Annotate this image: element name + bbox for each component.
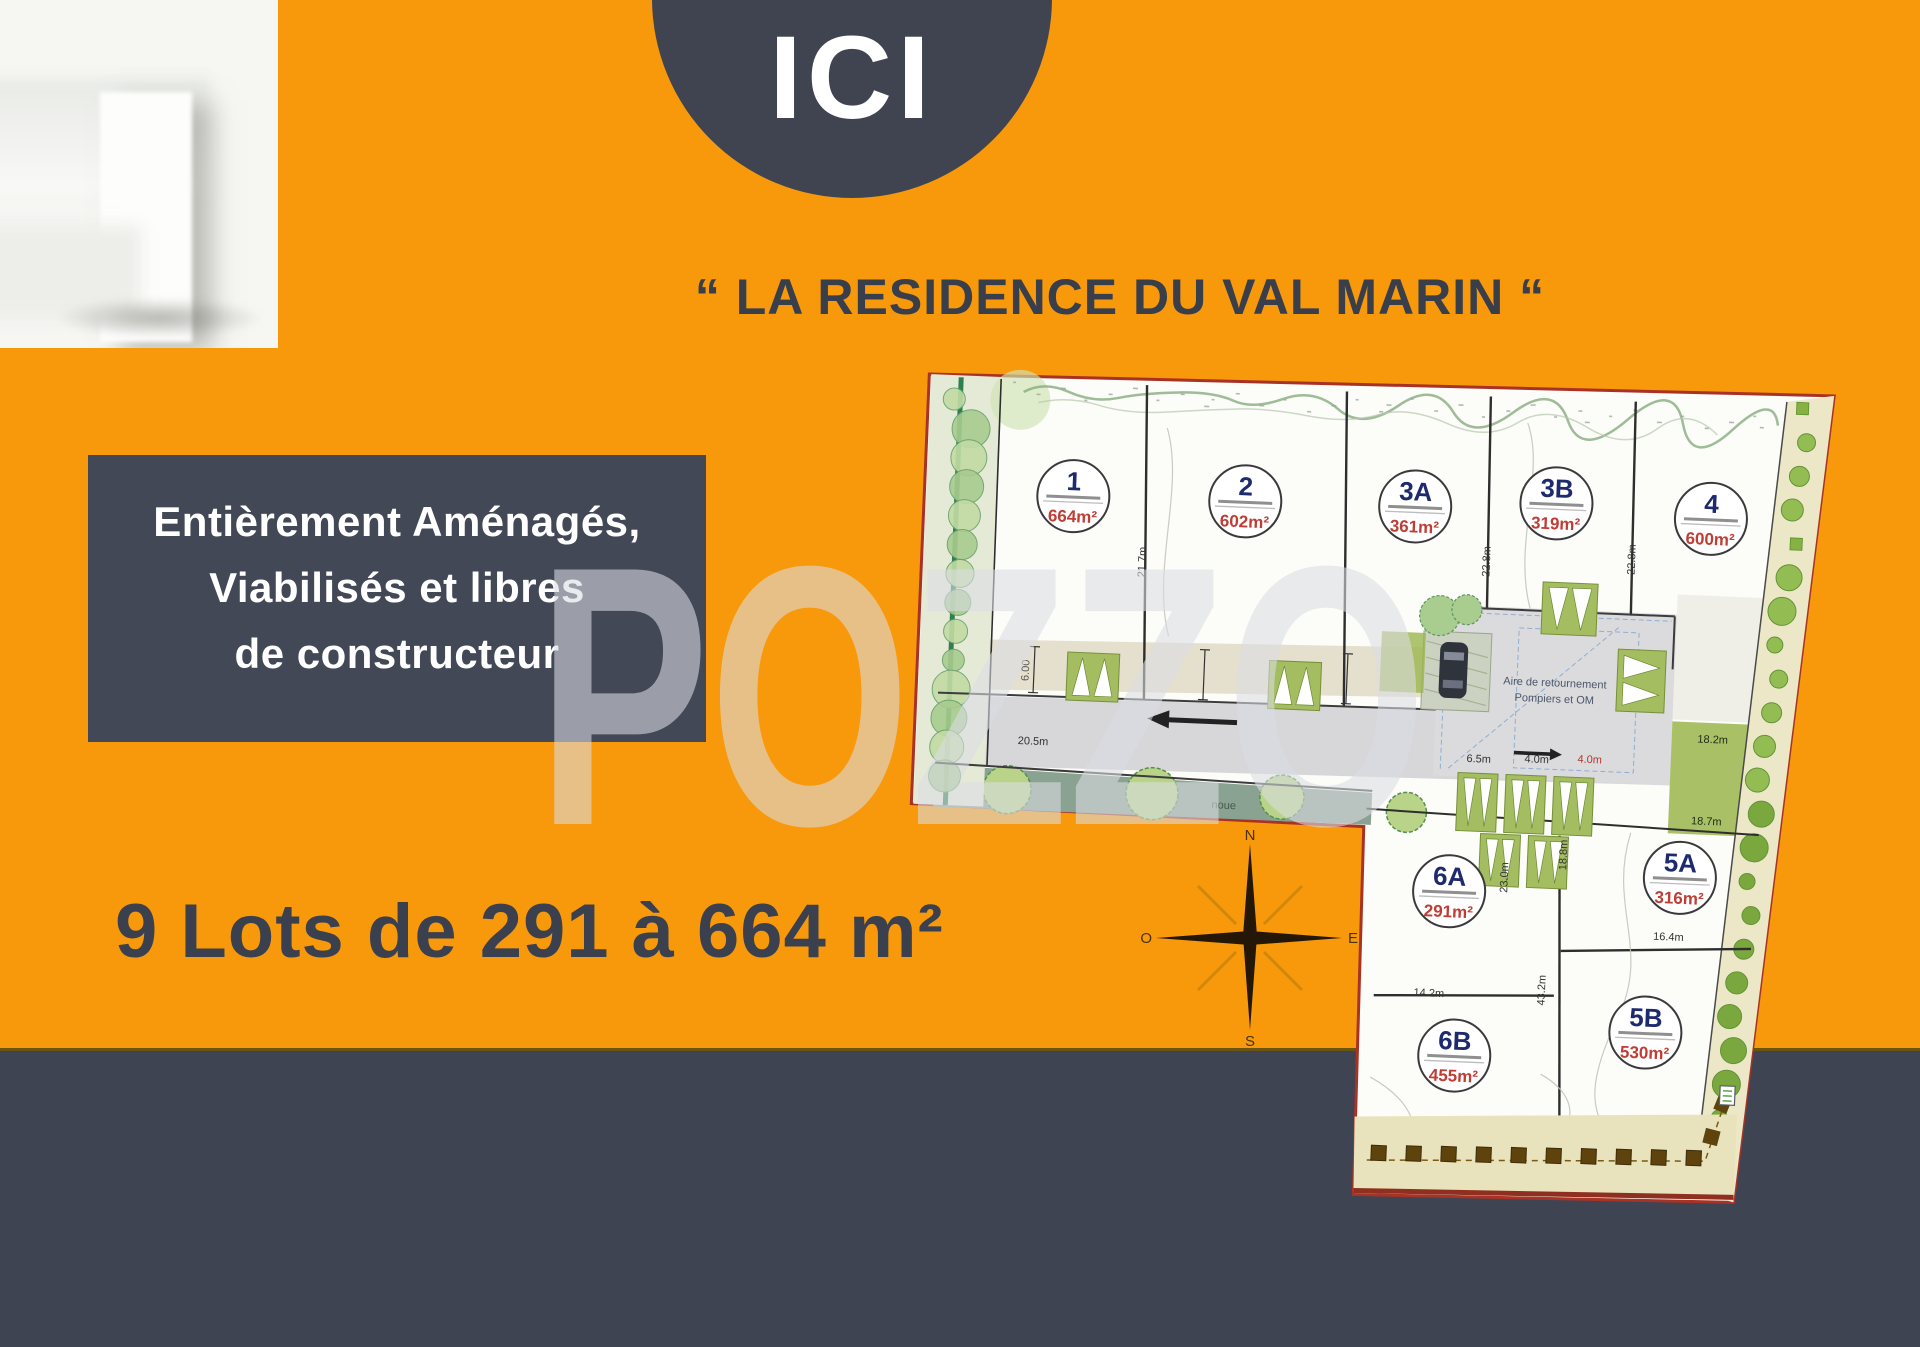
lot-number: 6B bbox=[1438, 1025, 1472, 1056]
hedge-symbol bbox=[1456, 772, 1498, 832]
measurement-label: 22.8m bbox=[1480, 546, 1493, 577]
lot-area: 455m² bbox=[1428, 1066, 1478, 1087]
lot-area: 319m² bbox=[1531, 513, 1581, 534]
poster: ICI “ LA RESIDENCE DU VAL MARIN “ Entièr… bbox=[0, 0, 1920, 1347]
utility-box bbox=[1719, 1086, 1735, 1106]
car-icon bbox=[1438, 642, 1468, 699]
measurement-label: 22.8m bbox=[1626, 544, 1639, 575]
lot-area: 361m² bbox=[1389, 516, 1439, 537]
lot-number: 6A bbox=[1433, 861, 1468, 892]
hedge-symbol bbox=[1552, 776, 1594, 836]
hedge-symbol bbox=[1268, 660, 1322, 710]
site-plan: noue bbox=[930, 358, 1890, 1238]
lot-area: 530m² bbox=[1620, 1043, 1670, 1064]
measurement-label: 20.5m bbox=[1017, 735, 1048, 748]
feature-line-3: de constructeur bbox=[88, 621, 706, 687]
lot-number: 3A bbox=[1399, 476, 1434, 507]
hedge-symbol bbox=[1066, 652, 1120, 702]
measurement-label: 16.4m bbox=[1653, 931, 1684, 944]
measurement-label: 6.00 bbox=[1020, 659, 1033, 681]
green-square-parking bbox=[1379, 631, 1425, 693]
photo-shadow bbox=[55, 298, 265, 338]
lot-number: 5B bbox=[1629, 1002, 1663, 1033]
lot-area: 291m² bbox=[1423, 901, 1473, 922]
lot-number: 4 bbox=[1704, 489, 1720, 520]
property-photo bbox=[0, 0, 278, 348]
measurement-label: 4.0m bbox=[1524, 753, 1549, 766]
lot-number: 2 bbox=[1238, 471, 1254, 502]
ici-badge: ICI bbox=[652, 0, 1052, 198]
measurement-label: 6.5m bbox=[1466, 753, 1491, 766]
swale-label: noue bbox=[1211, 799, 1236, 812]
ici-label: ICI bbox=[652, 10, 1052, 146]
page-title: “ LA RESIDENCE DU VAL MARIN “ bbox=[600, 268, 1640, 326]
lot-area: 664m² bbox=[1048, 506, 1098, 527]
hedge-symbol bbox=[1616, 649, 1667, 713]
measurement-label: 21.7m bbox=[1136, 547, 1149, 578]
lot-number: 3B bbox=[1540, 473, 1574, 504]
lot-area: 600m² bbox=[1685, 529, 1735, 550]
lot-area: 602m² bbox=[1219, 511, 1269, 532]
lot-number: 1 bbox=[1066, 466, 1082, 497]
lot-area: 316m² bbox=[1654, 888, 1704, 909]
features-box: Entièrement Aménagés, Viabilisés et libr… bbox=[88, 455, 706, 742]
measurement-label: 23.0m bbox=[1498, 862, 1511, 893]
measurement-label: 43.2m bbox=[1535, 975, 1548, 1006]
feature-line-1: Entièrement Aménagés, bbox=[88, 489, 706, 555]
feature-line-2: Viabilisés et libres bbox=[88, 555, 706, 621]
lot-number: 5A bbox=[1663, 847, 1698, 878]
hedge-symbol bbox=[1504, 774, 1546, 834]
hedge-symbol bbox=[1541, 582, 1598, 636]
measurement-label: 14.2m bbox=[1413, 987, 1444, 1000]
measurement-label: 18.2m bbox=[1697, 733, 1728, 746]
measurement-label: 4.0m bbox=[1577, 753, 1602, 766]
lots-headline: 9 Lots de 291 à 664 m² bbox=[115, 888, 944, 975]
measurement-label: 18.7m bbox=[1691, 815, 1722, 828]
measurement-label: 18.8m bbox=[1557, 839, 1570, 870]
